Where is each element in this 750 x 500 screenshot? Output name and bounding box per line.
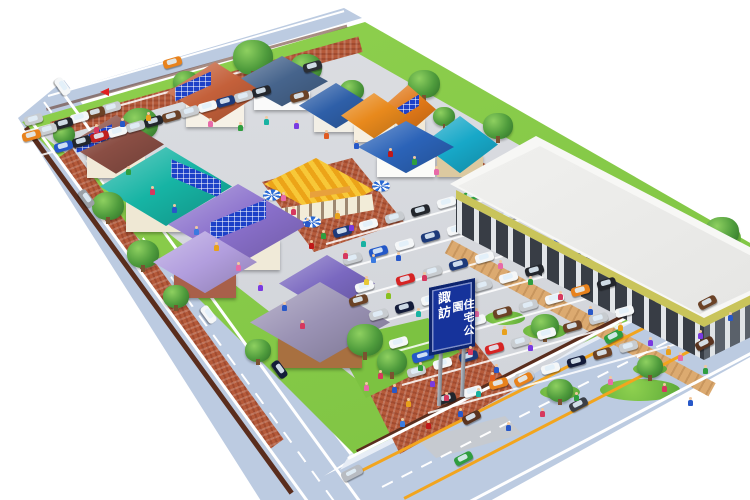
tree-trunk (390, 372, 394, 379)
person-body (574, 395, 579, 401)
person-body (618, 325, 623, 331)
car-window (701, 297, 711, 305)
person-body (291, 209, 296, 215)
car-window (27, 115, 37, 122)
car-window (622, 342, 632, 349)
person (506, 422, 511, 431)
parasol (372, 180, 390, 191)
person-body (400, 421, 405, 427)
person-body (361, 241, 366, 247)
person (94, 124, 99, 133)
person-body (388, 151, 393, 157)
car-window (183, 107, 193, 114)
tree-trunk (256, 359, 259, 365)
tree (547, 379, 573, 405)
person (291, 206, 296, 215)
person (120, 118, 125, 127)
housing-park-map: 諏訪 住宅公園 (0, 0, 750, 500)
person-body (506, 425, 511, 431)
person (430, 378, 435, 387)
tree (637, 355, 663, 381)
person (126, 166, 131, 175)
person-body (426, 423, 431, 429)
person (662, 383, 667, 392)
person (146, 112, 151, 121)
person (335, 210, 340, 219)
tree-trunk (174, 305, 177, 311)
person-body (364, 385, 369, 391)
person-body (416, 311, 421, 317)
person-body (662, 386, 667, 392)
car-window (398, 240, 408, 247)
car-window (540, 329, 550, 336)
person-body (172, 207, 177, 213)
person-body (688, 400, 693, 406)
person (321, 230, 326, 239)
person (588, 306, 593, 315)
car-window (502, 273, 512, 280)
car-window (607, 331, 617, 339)
person (386, 290, 391, 299)
person (305, 218, 310, 227)
person (412, 156, 417, 165)
person-body (608, 379, 613, 385)
person (558, 291, 563, 300)
car-window (574, 286, 584, 293)
person-body (281, 195, 286, 201)
person (618, 322, 623, 331)
person (502, 326, 507, 335)
person (378, 370, 383, 379)
person (264, 116, 269, 125)
car-window (517, 374, 527, 382)
person (309, 240, 314, 249)
tree-trunk (648, 375, 651, 381)
person-body (588, 309, 593, 315)
person-body (335, 213, 340, 219)
person-body (412, 159, 417, 165)
car-window (372, 310, 382, 317)
person (476, 388, 481, 397)
car-window (89, 108, 99, 115)
car-window (255, 87, 265, 94)
person (396, 252, 401, 261)
person-body (558, 294, 563, 300)
car-window (416, 351, 428, 358)
person (388, 148, 393, 157)
person (678, 352, 683, 361)
car-window (219, 97, 229, 104)
tree-trunk (106, 217, 110, 224)
car-window (466, 387, 476, 394)
person-body (126, 169, 131, 175)
person (300, 320, 305, 329)
car-window (424, 232, 434, 239)
person (688, 397, 693, 406)
person-body (468, 349, 473, 355)
car-window (362, 220, 372, 227)
car-window (426, 267, 436, 274)
parasol (263, 189, 281, 200)
person (703, 365, 708, 374)
person (364, 382, 369, 391)
person (208, 118, 213, 127)
car-window (237, 92, 247, 99)
person-body (396, 255, 401, 261)
person-body (386, 293, 391, 299)
person (418, 362, 423, 371)
person (468, 346, 473, 355)
person (528, 342, 533, 351)
car-window (388, 213, 398, 220)
car-window (336, 227, 346, 234)
car-window (306, 62, 316, 69)
park-sign: 諏訪 住宅公園 (429, 278, 475, 356)
person (371, 254, 376, 263)
person (349, 222, 354, 231)
person-body (540, 411, 545, 417)
tree-trunk (363, 352, 367, 360)
tree-canopy (92, 192, 124, 220)
person (324, 130, 329, 139)
person (343, 250, 348, 259)
person (400, 418, 405, 427)
person-body (502, 329, 507, 335)
car-window (618, 307, 628, 314)
exhibition-hall (440, 128, 750, 368)
person-body (458, 411, 463, 417)
car-window (465, 412, 475, 420)
car-window (392, 338, 402, 345)
person-body (264, 119, 269, 125)
person (490, 372, 495, 381)
person (236, 262, 241, 271)
person-body (434, 169, 439, 175)
car-window (57, 119, 67, 126)
person-body (150, 189, 155, 195)
car-window (25, 131, 35, 138)
person-body (364, 279, 369, 285)
person (574, 392, 579, 401)
person (361, 238, 366, 247)
car-window (165, 112, 175, 119)
car-window (496, 308, 506, 315)
car-window (293, 92, 303, 99)
car-window (592, 314, 602, 321)
person (294, 120, 299, 129)
person (214, 242, 219, 251)
car-window (596, 349, 606, 356)
person (666, 346, 671, 355)
person-body (309, 243, 314, 249)
person (281, 192, 286, 201)
car-window (129, 122, 139, 129)
car-window (372, 247, 382, 254)
person (258, 282, 263, 291)
tree (92, 192, 124, 224)
person (648, 337, 653, 346)
person-body (300, 323, 305, 329)
car-window (457, 453, 467, 461)
car-window (105, 103, 115, 110)
person-body (498, 263, 503, 269)
car-window (488, 344, 498, 351)
person-body (430, 381, 435, 387)
person-body (378, 373, 383, 379)
car-window (399, 275, 409, 282)
person (364, 276, 369, 285)
person-body (146, 115, 151, 121)
person (354, 140, 359, 149)
car-window (514, 337, 524, 344)
person-body (678, 355, 683, 361)
person (608, 376, 613, 385)
car-window (570, 357, 580, 364)
person-body (528, 279, 533, 285)
person (406, 398, 411, 407)
person (498, 260, 503, 269)
car-window (345, 468, 357, 477)
car-window (414, 206, 424, 213)
car-window (166, 58, 176, 65)
car-window (57, 142, 67, 149)
person-body (698, 333, 703, 339)
person-body (648, 340, 653, 346)
car-window (73, 113, 83, 120)
car-window (398, 303, 408, 310)
car-window (548, 294, 558, 301)
person-body (343, 253, 348, 259)
person-body (476, 391, 481, 397)
person-body (703, 368, 708, 374)
person-body (728, 315, 733, 321)
car-window (544, 364, 554, 371)
person-body (324, 133, 329, 139)
car-window (476, 281, 486, 288)
person (458, 408, 463, 417)
person-body (294, 123, 299, 129)
car-window (566, 322, 576, 329)
car-window (41, 125, 51, 132)
car-window (528, 266, 538, 273)
person (416, 308, 421, 317)
person-body (120, 121, 125, 127)
person-body (444, 395, 449, 401)
car-window (58, 80, 67, 90)
person (444, 392, 449, 401)
person-body (208, 121, 213, 127)
person (194, 226, 199, 235)
person-body (214, 245, 219, 251)
car-window (522, 301, 532, 308)
person (238, 122, 243, 131)
entrance-arrow-icon (100, 88, 109, 96)
sign-text-line1: 諏訪 (436, 290, 449, 349)
person (426, 420, 431, 429)
person-body (236, 265, 241, 271)
tree-trunk (141, 265, 145, 272)
person-body (354, 143, 359, 149)
car-window (111, 127, 121, 134)
person-body (349, 225, 354, 231)
person (150, 186, 155, 195)
car-window (75, 137, 85, 144)
person (528, 276, 533, 285)
tree-trunk (558, 399, 561, 405)
person-body (528, 345, 533, 351)
car-window (352, 296, 362, 303)
person-body (238, 125, 243, 131)
tree (245, 339, 271, 365)
person (698, 330, 703, 339)
person-body (406, 401, 411, 407)
sign-text-line2: 住宅公園 (452, 297, 474, 345)
person-body (321, 233, 326, 239)
person-body (371, 257, 376, 263)
person (434, 166, 439, 175)
person-body (282, 305, 287, 311)
person (728, 312, 733, 321)
person (422, 272, 427, 281)
tree (163, 285, 189, 311)
person-body (305, 221, 310, 227)
person (540, 408, 545, 417)
person-body (418, 365, 423, 371)
person-body (94, 127, 99, 133)
car-window (600, 279, 610, 286)
person-body (422, 275, 427, 281)
person-body (666, 349, 671, 355)
person-body (490, 375, 495, 381)
person (392, 384, 397, 393)
person-body (194, 229, 199, 235)
person (282, 302, 287, 311)
person-body (258, 285, 263, 291)
person-body (392, 387, 397, 393)
car-window (698, 338, 708, 346)
person (172, 204, 177, 213)
car-window (201, 102, 211, 109)
